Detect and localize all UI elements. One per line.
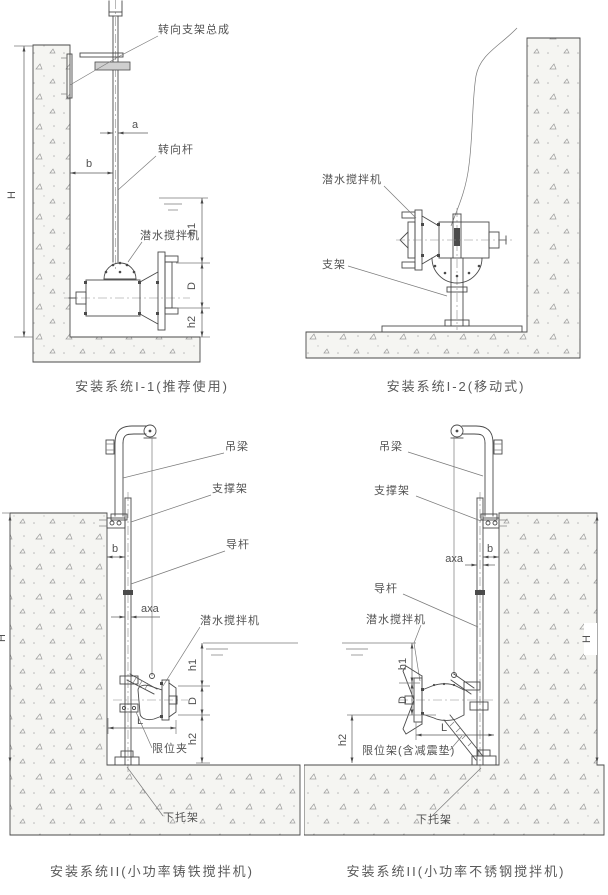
dimension-b: b bbox=[483, 543, 499, 557]
dim-h1-label: h1 bbox=[187, 659, 199, 671]
label-submersible-mixer: 潜水搅拌机 bbox=[163, 613, 260, 686]
svg-text:转向支架总成: 转向支架总成 bbox=[158, 22, 230, 36]
dimension-chain-h1-D-h2: h1 D h2 bbox=[176, 198, 210, 337]
label-steering-rod: 转向杆 bbox=[118, 142, 194, 190]
label-support-frame: 支撑架 bbox=[131, 481, 248, 522]
dim-H-label: H bbox=[6, 191, 18, 199]
dimension-chain-h1-D: h1 D bbox=[347, 643, 436, 715]
dim-a-label: a bbox=[132, 119, 139, 131]
label-guide-rod: 导杆 bbox=[131, 537, 250, 584]
dimension-b: b bbox=[107, 543, 125, 557]
dim-b-label: b bbox=[86, 158, 92, 170]
panel-system-ii-stainless: H bbox=[304, 410, 608, 895]
dim-axa-label: axa bbox=[445, 553, 464, 565]
panel-i1-caption: 安装系统I-1(推荐使用) bbox=[0, 376, 304, 395]
label-stand: 支架 bbox=[322, 258, 447, 296]
label-hanging-beam: 吊梁 bbox=[123, 439, 249, 478]
label-submersible-mixer: 潜水搅拌机 bbox=[366, 612, 426, 681]
label-support-frame: 支撑架 bbox=[374, 483, 481, 521]
power-cable bbox=[451, 28, 517, 226]
dim-b-label: b bbox=[112, 543, 118, 555]
concrete-wall-and-floor bbox=[10, 513, 300, 835]
dim-axa-label: axa bbox=[141, 603, 160, 615]
steering-rod bbox=[109, 0, 122, 270]
svg-text:潜水搅拌机: 潜水搅拌机 bbox=[366, 612, 426, 626]
label-limit-frame: 限位架(含减震垫) bbox=[362, 736, 462, 757]
svg-text:限位夹: 限位夹 bbox=[152, 741, 188, 755]
label-hanging-beam: 吊梁 bbox=[379, 439, 483, 476]
dimension-axa: axa bbox=[111, 603, 160, 617]
svg-text:导杆: 导杆 bbox=[374, 581, 398, 595]
label-steering-bracket-assembly: 转向支架总成 bbox=[70, 22, 230, 85]
svg-text:吊梁: 吊梁 bbox=[379, 439, 403, 453]
dimension-a: a bbox=[100, 119, 148, 133]
svg-text:支架: 支架 bbox=[322, 258, 346, 271]
svg-text:导杆: 导杆 bbox=[226, 537, 250, 551]
panel-system-i2: 潜水搅拌机 支架 安装系统I-2(移动式) bbox=[304, 0, 608, 410]
panel-ii-stainless-drawing: H bbox=[304, 410, 608, 857]
mixer-assembly bbox=[64, 252, 190, 330]
label-submersible-mixer: 潜水搅拌机 bbox=[322, 172, 416, 218]
dimension-h2: h2 bbox=[337, 715, 352, 763]
panel-ii-cast-iron-caption: 安装系统II(小功率铸铁搅拌机) bbox=[0, 861, 304, 880]
dimension-H: H bbox=[0, 513, 10, 763]
concrete-wall-and-floor bbox=[306, 38, 580, 358]
panel-ii-cast-iron-drawing: H bbox=[0, 410, 304, 857]
guide-rod bbox=[123, 492, 133, 772]
water-level-mark bbox=[203, 643, 298, 655]
mixer-assembly bbox=[396, 210, 514, 283]
stand-pedestal bbox=[382, 208, 522, 332]
dim-h1-label: h1 bbox=[397, 658, 409, 670]
steering-bracket-assembly bbox=[61, 53, 130, 98]
panel-system-i1: H 转向支架总成 bbox=[0, 0, 304, 410]
lower-bracket bbox=[472, 750, 496, 765]
panel-system-ii-cast-iron: H bbox=[0, 410, 304, 895]
mixer-assembly bbox=[113, 674, 188, 721]
svg-text:吊梁: 吊梁 bbox=[225, 439, 249, 453]
jib-crane bbox=[451, 425, 502, 675]
dim-b-label: b bbox=[487, 543, 493, 555]
lower-bracket bbox=[115, 751, 139, 765]
dim-H-label: H bbox=[0, 634, 8, 642]
svg-text:转向杆: 转向杆 bbox=[158, 142, 194, 156]
dim-h2-label: h2 bbox=[337, 734, 349, 746]
svg-text:下托架: 下托架 bbox=[163, 810, 199, 824]
panel-i2-caption: 安装系统I-2(移动式) bbox=[304, 376, 608, 395]
dimension-L: L bbox=[416, 722, 494, 740]
dim-H-label: H bbox=[581, 635, 593, 643]
panel-ii-stainless-caption: 安装系统II(小功率不锈钢搅拌机) bbox=[304, 861, 608, 880]
water-level-mark bbox=[342, 643, 416, 655]
dim-D-label: D bbox=[186, 282, 198, 290]
svg-text:潜水搅拌机: 潜水搅拌机 bbox=[200, 613, 260, 627]
dim-L-label: L bbox=[441, 722, 447, 734]
svg-text:支撑架: 支撑架 bbox=[212, 481, 248, 495]
dim-h2-label: h2 bbox=[186, 316, 198, 328]
panel-i1-drawing: H 转向支架总成 bbox=[0, 0, 304, 372]
dim-D-label: D bbox=[187, 697, 199, 705]
svg-text:潜水搅拌机: 潜水搅拌机 bbox=[322, 172, 382, 186]
drawing-sheet: H 转向支架总成 bbox=[0, 0, 608, 895]
dimension-H: H bbox=[6, 46, 33, 337]
svg-text:支撑架: 支撑架 bbox=[374, 483, 410, 497]
dim-h1-label: h1 bbox=[186, 223, 198, 235]
guide-rod bbox=[475, 492, 485, 772]
dimension-L: L bbox=[108, 715, 176, 734]
panel-i2-drawing: 潜水搅拌机 支架 bbox=[304, 0, 608, 372]
dim-D-label: D bbox=[397, 696, 409, 704]
concrete-wall-and-floor bbox=[33, 45, 200, 362]
dimension-b: b bbox=[70, 158, 113, 173]
water-level-mark bbox=[159, 198, 208, 210]
svg-text:限位架(含减震垫): 限位架(含减震垫) bbox=[362, 743, 455, 757]
dim-h2-label: h2 bbox=[187, 733, 199, 745]
